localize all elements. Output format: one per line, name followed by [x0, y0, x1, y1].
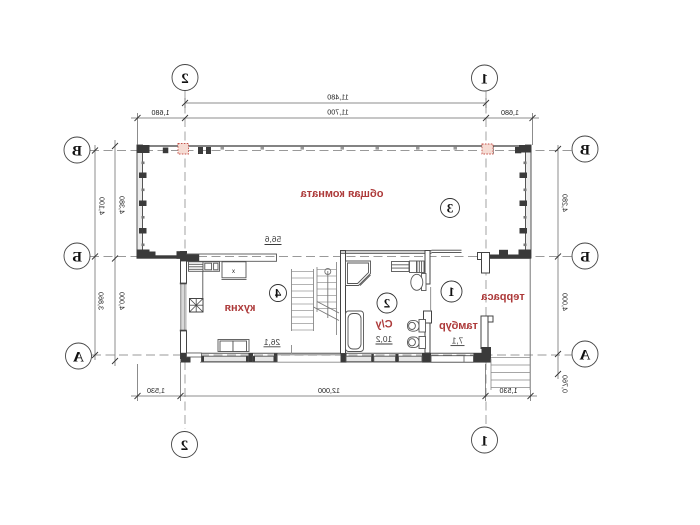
- svg-text:7,1: 7,1: [451, 335, 463, 345]
- svg-text:3: 3: [446, 201, 453, 216]
- svg-text:4,000: 4,000: [118, 292, 127, 310]
- svg-text:0,760: 0,760: [561, 375, 570, 393]
- svg-text:терраса: терраса: [480, 291, 524, 303]
- svg-text:56,6: 56,6: [265, 234, 282, 244]
- svg-text:2: 2: [384, 296, 391, 311]
- svg-text:4: 4: [274, 286, 281, 301]
- svg-text:тамбур: тамбур: [439, 320, 478, 332]
- svg-text:С/у: С/у: [375, 319, 393, 331]
- svg-text:12,000: 12,000: [318, 386, 340, 395]
- svg-text:4,100: 4,100: [98, 197, 107, 215]
- svg-text:26,1: 26,1: [264, 337, 281, 347]
- svg-text:1,680: 1,680: [501, 108, 519, 117]
- svg-text:Б: Б: [72, 249, 82, 265]
- svg-text:1: 1: [448, 284, 455, 299]
- svg-text:x: x: [232, 269, 235, 275]
- svg-text:А: А: [73, 349, 84, 365]
- svg-text:1: 1: [481, 71, 489, 87]
- svg-text:10,2: 10,2: [376, 334, 393, 344]
- svg-text:кухня: кухня: [225, 302, 256, 314]
- svg-text:4,380: 4,380: [118, 196, 127, 214]
- svg-text:1: 1: [481, 433, 489, 449]
- svg-text:4,000: 4,000: [561, 293, 570, 311]
- svg-text:общая комната: общая комната: [300, 188, 384, 200]
- svg-text:В: В: [580, 142, 590, 158]
- svg-text:11,700: 11,700: [327, 108, 348, 117]
- svg-text:2: 2: [181, 71, 189, 87]
- svg-text:В: В: [72, 143, 82, 159]
- svg-text:3,860: 3,860: [97, 292, 106, 310]
- svg-text:Б: Б: [580, 249, 590, 265]
- svg-text:1,680: 1,680: [152, 108, 170, 117]
- svg-text:11,480: 11,480: [327, 93, 348, 102]
- svg-text:4,280: 4,280: [561, 194, 570, 212]
- svg-text:А: А: [579, 347, 590, 363]
- svg-text:1,530: 1,530: [147, 386, 165, 395]
- svg-text:2: 2: [181, 438, 189, 454]
